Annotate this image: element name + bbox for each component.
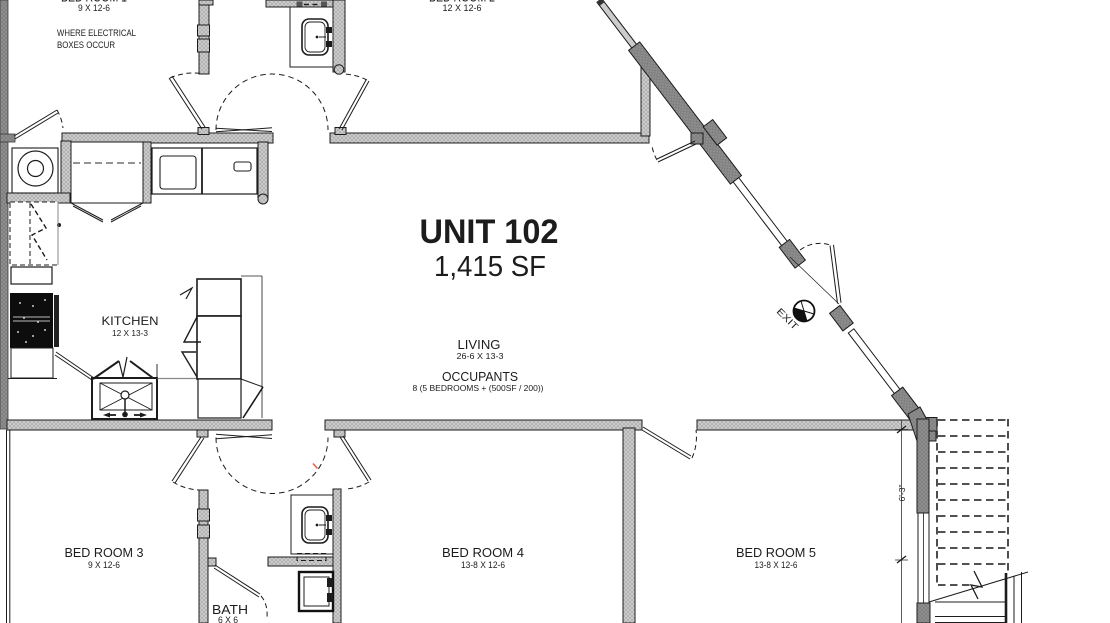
svg-text:26-6 X 13-3: 26-6 X 13-3 (457, 351, 504, 361)
svg-text:13-8 X 12-6: 13-8 X 12-6 (755, 560, 798, 570)
svg-text:BED ROOM 5: BED ROOM 5 (736, 545, 816, 560)
svg-text:BED ROOM 3: BED ROOM 3 (65, 545, 144, 560)
svg-text:WHERE ELECTRICAL: WHERE ELECTRICAL (57, 28, 136, 38)
svg-text:12 X 13-3: 12 X 13-3 (112, 328, 148, 338)
svg-text:BOXES OCCUR: BOXES OCCUR (57, 40, 115, 50)
svg-text:9 X 12-6: 9 X 12-6 (88, 560, 120, 570)
svg-text:LIVING: LIVING (458, 337, 501, 352)
svg-text:6'-3": 6'-3" (897, 485, 907, 502)
svg-text:1,415 SF: 1,415 SF (434, 251, 546, 283)
svg-text:BED ROOM 4: BED ROOM 4 (442, 545, 524, 560)
svg-text:UNIT 102: UNIT 102 (420, 213, 559, 251)
svg-text:8 (5 BEDROOMS + (500SF / 200)): 8 (5 BEDROOMS + (500SF / 200)) (413, 384, 544, 393)
svg-text:KITCHEN: KITCHEN (102, 314, 159, 328)
svg-text:13-8 X 12-6: 13-8 X 12-6 (461, 560, 505, 570)
svg-text:OCCUPANTS: OCCUPANTS (442, 370, 518, 384)
svg-text:12 X 12-6: 12 X 12-6 (443, 3, 482, 13)
svg-text:9 X 12-6: 9 X 12-6 (78, 3, 110, 13)
svg-text:6 X 6: 6 X 6 (218, 615, 238, 623)
